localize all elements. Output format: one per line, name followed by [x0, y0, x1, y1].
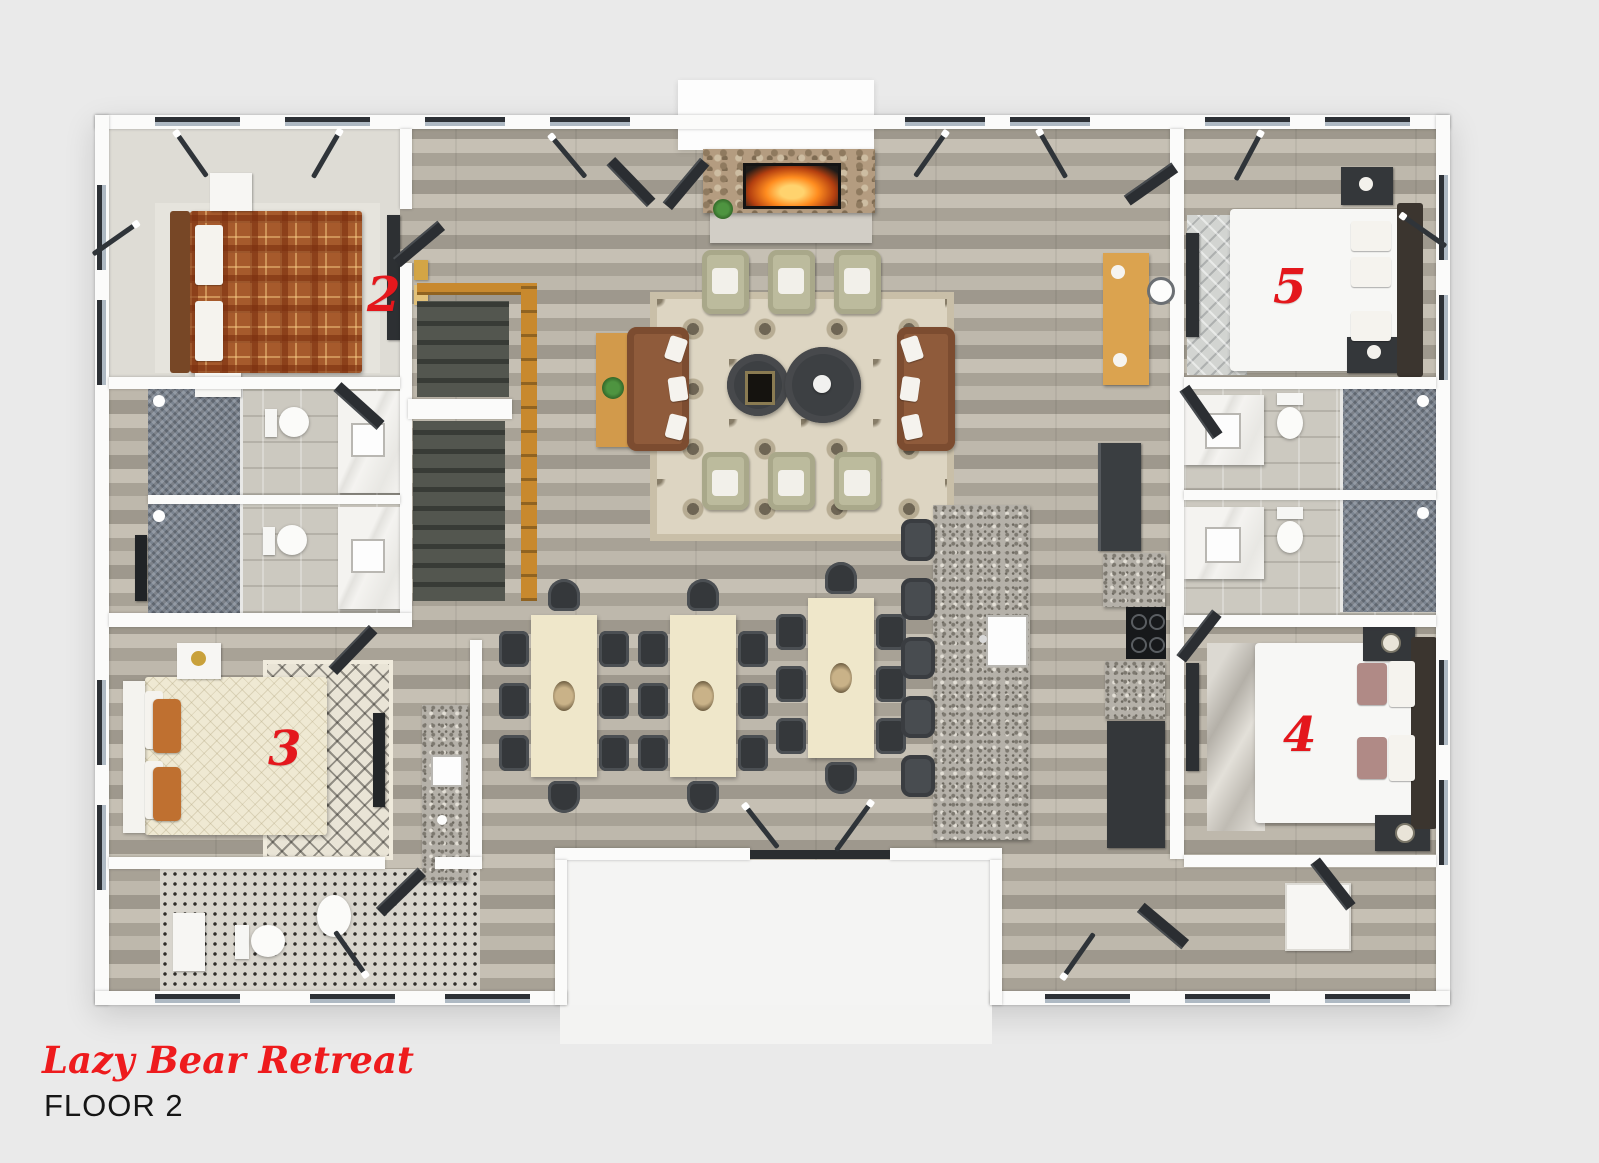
dining-chair: [599, 631, 629, 667]
shower-head: [1417, 507, 1429, 519]
table-centerpiece: [553, 681, 575, 711]
door-panel-closet: [1137, 903, 1189, 949]
dining-chair: [687, 579, 719, 611]
bedroom-5-pillow: [1351, 257, 1391, 287]
dining-chair: [499, 683, 529, 719]
nightstand-cup: [1359, 177, 1373, 191]
stairs-lower-flight: [413, 421, 505, 601]
bedroom-2-nightstand: [210, 173, 252, 211]
bedroom-2-pillow: [195, 225, 223, 285]
window: [1325, 117, 1410, 126]
kitchen-cabinets: [1107, 721, 1165, 848]
window: [1010, 117, 1090, 126]
dining-chair: [638, 683, 668, 719]
cooktop: [1126, 607, 1166, 659]
french-door-pane: [745, 807, 780, 849]
console-plant: [602, 377, 624, 399]
dining-chair: [738, 631, 768, 667]
fireplace-hearth: [710, 213, 872, 243]
window: [1325, 994, 1410, 1003]
armchair: [834, 452, 881, 510]
vanity-sink: [431, 755, 463, 787]
wall-baths-left-mid: [148, 495, 400, 504]
island-sink: [986, 615, 1028, 667]
window: [1205, 117, 1290, 126]
bedroom-3-headboard: [123, 681, 145, 833]
armchair: [768, 250, 815, 314]
dining-chair: [825, 562, 857, 594]
kitchen-counter: [1103, 553, 1165, 607]
porch-cutout: [567, 860, 990, 1005]
window: [1185, 994, 1270, 1003]
kitchen-island: [933, 505, 1030, 840]
potted-plant: [713, 199, 733, 219]
coffee-table-tray: [813, 375, 831, 393]
wall-bed3-bottom: [109, 857, 385, 869]
armchair: [768, 452, 815, 510]
french-door-sill: [750, 850, 890, 859]
floor-label: FLOOR 2: [44, 1088, 184, 1124]
coffee-cup: [1111, 265, 1125, 279]
bedroom-3-pillow-orange: [153, 699, 181, 753]
table-centerpiece: [692, 681, 714, 711]
dining-chair: [638, 631, 668, 667]
window: [1045, 994, 1130, 1003]
property-title: Lazy Bear Retreat: [42, 1038, 414, 1082]
linen-bench: [135, 535, 147, 601]
bedroom-4-pillow: [1389, 735, 1415, 781]
nightstand-cup: [1367, 345, 1381, 359]
dining-chair: [776, 666, 806, 702]
fireplace-firebox: [743, 163, 841, 209]
open-window-pane: [1063, 932, 1096, 976]
dining-chair: [638, 735, 668, 771]
wall-bed3-bottom-2: [435, 857, 482, 869]
floor-plan-canvas: 2: [0, 0, 1599, 1163]
vanity-sink: [351, 423, 385, 457]
open-window-pane: [552, 137, 588, 179]
bar-stool: [901, 578, 935, 620]
dining-chair: [548, 579, 580, 611]
wall-bed3-right: [470, 640, 482, 860]
toilet: [1275, 507, 1305, 555]
door-panel-hall: [607, 157, 656, 207]
wall-right-main-vertical: [1170, 129, 1184, 859]
dining-chair: [776, 614, 806, 650]
wall-bathB-bottom: [1184, 615, 1436, 627]
dining-chair: [499, 735, 529, 771]
window: [155, 994, 240, 1003]
window: [285, 117, 370, 126]
shower-head: [153, 510, 165, 522]
armchair: [702, 452, 749, 510]
coffee-table-book: [745, 371, 775, 405]
bedroom-5-pillow: [1351, 221, 1391, 251]
wall-baths-left-bottom: [109, 613, 412, 627]
bedroom-4-pillow-mauve: [1357, 663, 1387, 705]
bedroom-4-pillow-mauve: [1357, 737, 1387, 779]
bar-stool: [901, 755, 935, 797]
refrigerator: [1098, 443, 1141, 551]
sofa-pillow: [899, 376, 920, 402]
dining-chair: [599, 735, 629, 771]
dining-chair: [776, 718, 806, 754]
dining-chair: [825, 762, 857, 794]
bedroom-3-vanity-counter: [422, 705, 468, 881]
coffee-bar-console: [1103, 253, 1149, 385]
open-window-pane: [1234, 135, 1262, 181]
floor-plan: 2: [95, 115, 1450, 1005]
hall-art-frame: [414, 260, 428, 280]
window: [445, 994, 530, 1003]
bedroom-2-headboard: [170, 211, 190, 373]
wall-right-baths-mid: [1184, 490, 1436, 500]
nightstand-lamp-gold: [191, 651, 206, 666]
stairs-upper-flight: [417, 301, 509, 397]
toilet: [263, 523, 309, 559]
vanity-sink: [351, 539, 385, 573]
window: [905, 117, 985, 126]
nightstand-lamp: [1381, 633, 1401, 653]
armchair: [834, 250, 881, 314]
wall-bed2-right-lower: [400, 263, 412, 613]
wall-bed2-right-upper: [400, 129, 412, 209]
bedroom-2-pillow: [195, 301, 223, 361]
window: [310, 994, 395, 1003]
wall-bed5-bottom: [1184, 377, 1436, 389]
window: [1439, 780, 1448, 865]
nightstand-lamp: [1395, 823, 1415, 843]
bar-stool: [901, 637, 935, 679]
coffee-cup: [1113, 353, 1127, 367]
porch-wall-right: [990, 860, 1002, 1005]
vanity-soap: [437, 815, 447, 825]
armchair: [702, 250, 749, 314]
bar-stool: [901, 696, 935, 738]
bar-stool: [901, 519, 935, 561]
window: [155, 117, 240, 126]
bedroom-4-tv-stand: [1186, 663, 1199, 771]
porch-cutout-apron: [560, 1000, 992, 1044]
dining-chair: [738, 735, 768, 771]
shower-head: [153, 395, 165, 407]
dining-chair: [548, 781, 580, 813]
toilet: [265, 405, 311, 441]
open-window-pane: [913, 134, 946, 178]
window: [550, 117, 630, 126]
bathroom-ensuite-floor: [160, 869, 480, 991]
bedroom-5-pillow: [1351, 311, 1391, 341]
window: [97, 300, 106, 385]
shower-head: [1417, 395, 1429, 407]
porch-wall-top-left: [555, 848, 750, 860]
wall-bed2-bottom: [109, 377, 400, 389]
toilet: [1275, 393, 1305, 441]
stairs-landing: [408, 399, 512, 419]
window: [97, 680, 106, 765]
window: [1439, 295, 1448, 380]
room-number-2: 2: [367, 267, 400, 323]
window: [1439, 660, 1448, 745]
dining-chair: [599, 683, 629, 719]
dining-chair: [738, 683, 768, 719]
toilet: [235, 921, 287, 961]
bedroom-3-media-console: [373, 713, 385, 807]
stair-railing: [521, 283, 537, 601]
sofa-pillow: [667, 376, 688, 402]
window: [97, 805, 106, 890]
vanity-sink: [1205, 527, 1241, 563]
window: [425, 117, 505, 126]
island-faucet: [979, 635, 987, 643]
open-window-pane: [1039, 133, 1068, 179]
bathroom-cabinet: [173, 913, 205, 971]
table-centerpiece: [830, 663, 852, 693]
bedroom-4-pillow: [1389, 661, 1415, 707]
bedroom-5-dresser: [1186, 233, 1199, 337]
porch-wall-top-right: [890, 848, 1002, 860]
bedroom-3-pillow-orange: [153, 767, 181, 821]
stair-railing-top: [417, 283, 521, 295]
room-number-5: 5: [1273, 259, 1306, 315]
dining-chair: [687, 781, 719, 813]
room-number-4: 4: [1283, 707, 1316, 763]
wall-clock: [1147, 277, 1175, 305]
room-number-3: 3: [268, 721, 301, 777]
porch-wall-left: [555, 860, 567, 1005]
french-door-pane: [834, 804, 871, 852]
window: [97, 185, 106, 270]
dining-chair: [499, 631, 529, 667]
kitchen-counter: [1105, 661, 1165, 719]
